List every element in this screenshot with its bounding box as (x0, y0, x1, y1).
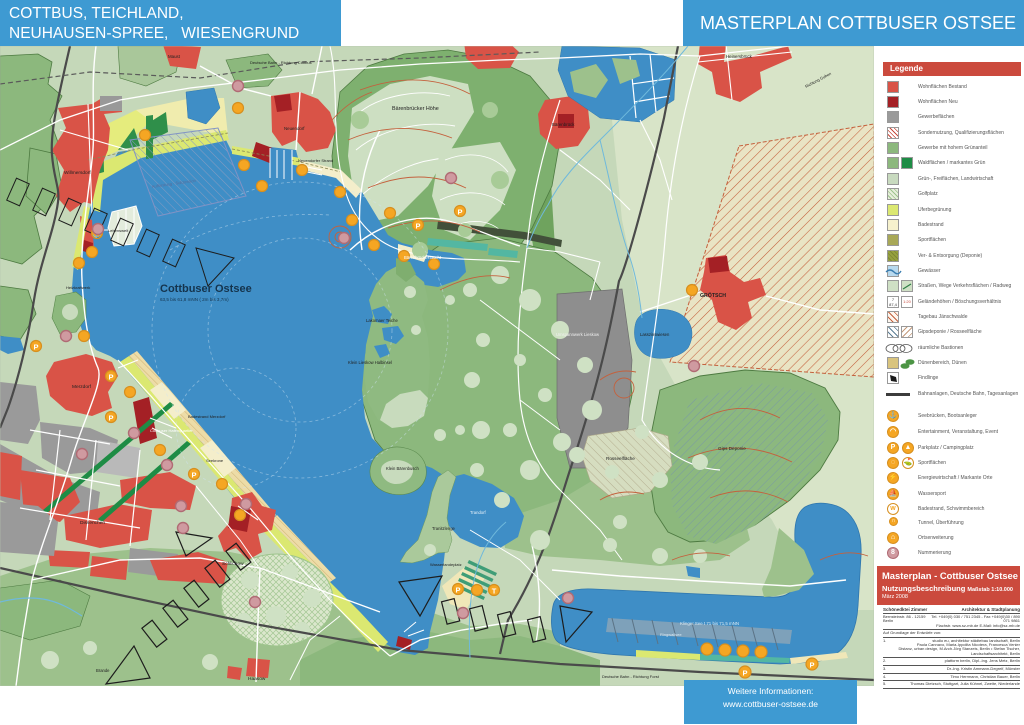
svg-text:Lakomaer Teiche: Lakomaer Teiche (366, 318, 398, 323)
svg-text:Badestrand Merzdorf: Badestrand Merzdorf (188, 414, 226, 419)
svg-text:P: P (108, 414, 113, 423)
svg-text:P: P (809, 661, 814, 670)
svg-text:Maust: Maust (168, 54, 181, 59)
svg-text:Lebenswelt: Lebenswelt (108, 228, 129, 233)
svg-text:GRÖTSCH: GRÖTSCH (700, 292, 726, 299)
svg-text:Klinger See t 71 bis 71,5 mNN: Klinger See t 71 bis 71,5 mNN (680, 621, 739, 626)
svg-text:P: P (457, 208, 462, 217)
svg-text:P: P (108, 373, 113, 382)
svg-text:Willmersdorf: Willmersdorf (64, 170, 91, 176)
svg-text:Schlichow: Schlichow (222, 561, 244, 567)
svg-text:Bärenbrück: Bärenbrück (552, 122, 575, 127)
svg-text:Bärenbrücker Höhe: Bärenbrücker Höhe (392, 106, 439, 112)
svg-text:Deutsche Bahn - Richtung Forst: Deutsche Bahn - Richtung Forst (602, 674, 660, 679)
svg-text:Tranitzlenge: Tranitzlenge (432, 526, 456, 531)
svg-text:Heinersbrück: Heinersbrück (726, 54, 753, 59)
svg-text:Lasszinswiesen: Lasszinswiesen (640, 332, 670, 337)
svg-text:P: P (33, 343, 38, 352)
svg-text:P: P (742, 669, 747, 678)
svg-text:Seekrone: Seekrone (206, 458, 224, 463)
svg-text:Trandorf: Trandorf (470, 510, 487, 515)
svg-text:Cottbuser Hafenquartier: Cottbuser Hafenquartier (150, 428, 193, 433)
svg-text:Rosseelfläche: Rosseelfläche (606, 456, 635, 461)
svg-text:Neuendorf: Neuendorf (284, 126, 305, 131)
svg-text:Haasow: Haasow (248, 676, 266, 682)
svg-text:P: P (455, 586, 460, 595)
svg-text:Brande: Brande (96, 668, 110, 673)
svg-text:Dissenchen: Dissenchen (80, 520, 105, 526)
svg-text:Deutsche Bahn - Richtung Cottb: Deutsche Bahn - Richtung Cottbus (250, 60, 312, 65)
svg-text:Gips Deponie: Gips Deponie (718, 446, 746, 451)
svg-text:Klein Lieskow Halbinsel: Klein Lieskow Halbinsel (348, 360, 392, 365)
svg-text:Bärenbrücker Bucht: Bärenbrücker Bucht (404, 255, 442, 260)
svg-text:63,5 bis 61,8 mNN ( 2m bis 3,7: 63,5 bis 61,8 mNN ( 2m bis 3,7m) (160, 297, 229, 302)
svg-text:P: P (415, 222, 420, 231)
svg-text:Umspannwerk Lieskow: Umspannwerk Lieskow (556, 332, 600, 337)
svg-text:P: P (191, 471, 196, 480)
svg-text:Wasserlandeplatz: Wasserlandeplatz (430, 562, 462, 567)
svg-text:T: T (492, 587, 497, 596)
svg-text:Neuendorfer Strand: Neuendorfer Strand (298, 158, 333, 163)
svg-text:Klein Bärenbusch: Klein Bärenbusch (386, 466, 419, 471)
svg-text:Cottbuser Ostsee: Cottbuser Ostsee (160, 283, 252, 295)
svg-text:Merzdorf: Merzdorf (72, 384, 92, 390)
svg-text:Heizkraftwerk: Heizkraftwerk (66, 285, 90, 290)
svg-text:Ringwallsee: Ringwallsee (660, 632, 682, 637)
